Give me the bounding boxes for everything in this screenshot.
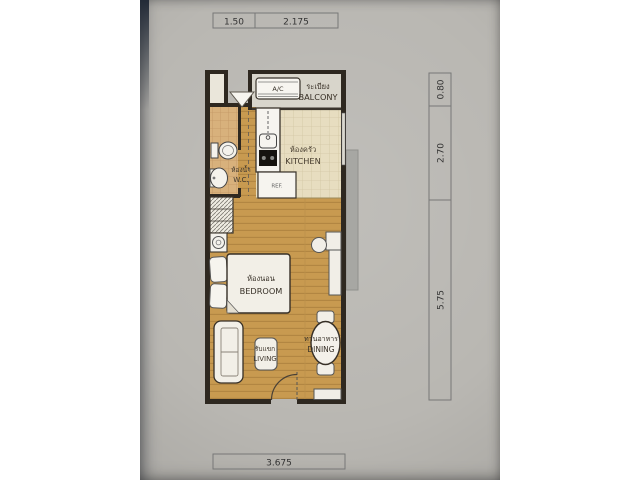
ac-label: A/C	[272, 85, 284, 93]
living-label-en: LIVING	[253, 355, 276, 363]
sofa-icon	[214, 321, 243, 383]
wash-basin-icon	[210, 168, 228, 188]
dim-bottom: 3.675	[266, 459, 292, 469]
kitchen-label-en: KITCHEN	[285, 156, 320, 166]
balcony-label-thai: ระเบียง	[306, 82, 330, 91]
dimension-row-top: 1.50 2.175	[213, 13, 338, 28]
refrigerator: REF.	[258, 172, 296, 198]
floor-plan-drawing: 1.50 2.175 0.80 2.70 5.75 3.675	[140, 0, 500, 480]
kitchen-counter	[256, 108, 280, 172]
ac-unit-icon: A/C	[256, 78, 300, 99]
wc-label-en: W.C.	[233, 176, 248, 184]
dim-top-left: 1.50	[224, 18, 244, 28]
dim-right-main: 5.75	[437, 290, 447, 310]
dim-right-kitchen: 2.70	[437, 143, 447, 163]
washing-machine-icon	[210, 233, 227, 252]
bedroom-label-en: BEDROOM	[240, 286, 283, 296]
closet-floor	[209, 74, 225, 103]
wardrobe-hatched	[210, 197, 233, 233]
stool-icon	[312, 238, 327, 253]
wc-label-thai: ห้องน้ำ	[231, 165, 251, 174]
dimension-column-right: 0.80 2.70 5.75	[429, 73, 451, 400]
bedroom-label-thai: ห้องนอน	[247, 274, 275, 283]
dimension-row-bottom: 3.675	[213, 454, 345, 469]
dining-label-thai: ทานอาหาร	[304, 335, 338, 343]
floor-plan-photo: 1.50 2.175 0.80 2.70 5.75 3.675	[140, 0, 500, 480]
refrigerator-label: REF.	[271, 184, 283, 190]
kitchen-label-thai: ห้องครัว	[290, 145, 316, 154]
toilet-icon	[211, 142, 237, 159]
stove-icon	[259, 150, 277, 166]
armchair-icon	[255, 338, 277, 370]
dining-label-en: DINING	[307, 345, 334, 354]
kitchen-window	[342, 113, 345, 165]
balcony-label-en: BALCONY	[298, 92, 338, 102]
dim-right-balcony: 0.80	[437, 79, 447, 99]
dim-top-right: 2.175	[283, 18, 309, 28]
screenshot-canvas: 1.50 2.175 0.80 2.70 5.75 3.675	[0, 0, 640, 480]
living-label-thai: รับแขก	[255, 345, 275, 353]
exterior-ledge	[346, 150, 358, 290]
entry-bench-icon	[314, 389, 341, 400]
